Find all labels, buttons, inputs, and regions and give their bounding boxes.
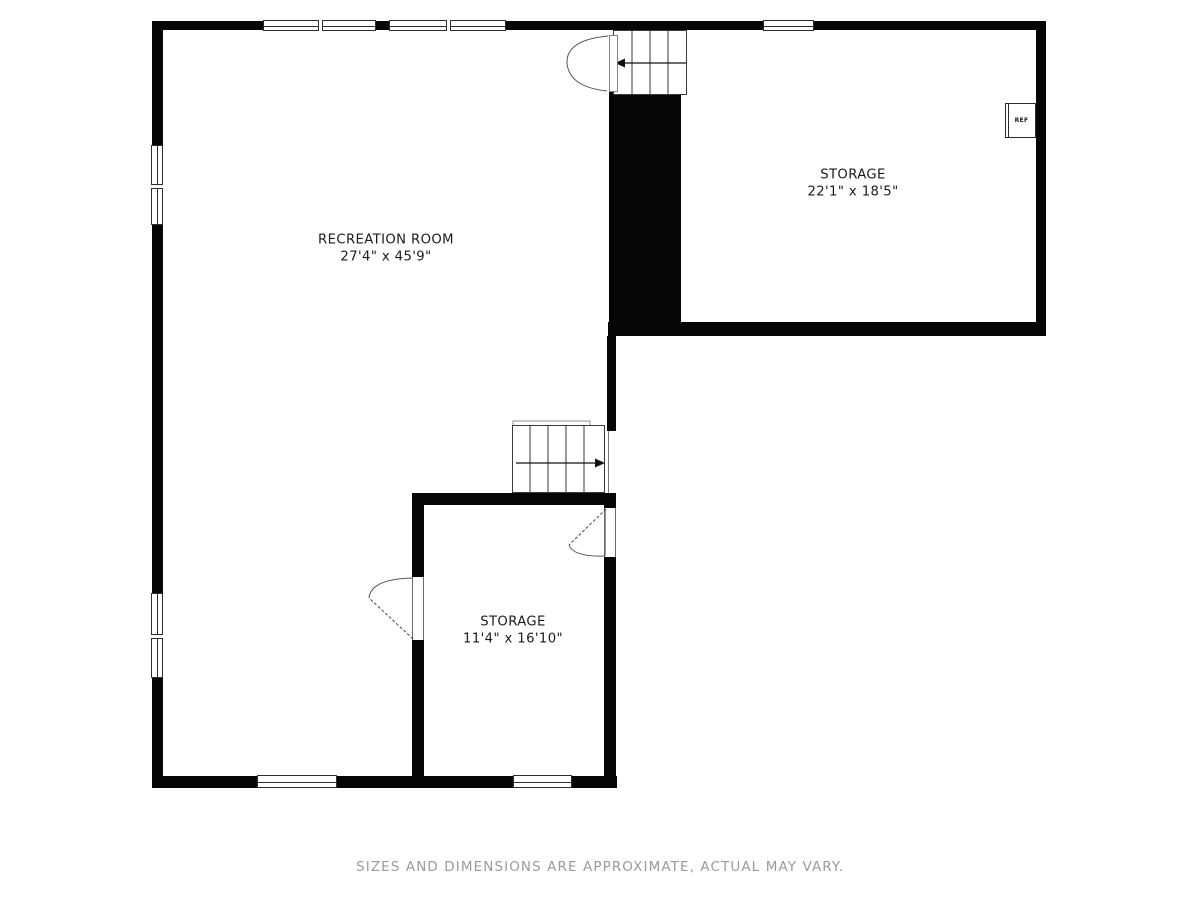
storage-lower-label: STORAGE 11'4" x 16'10"	[463, 615, 563, 648]
upper-stair-door-swing	[567, 36, 618, 92]
floor-plan: RECREATION ROOM 27'4" x 45'9" STORAGE 22…	[0, 0, 1200, 900]
room-name: RECREATION ROOM	[318, 233, 454, 250]
recreation-room-label: RECREATION ROOM 27'4" x 45'9"	[318, 233, 454, 266]
disclaimer-text: SIZES AND DIMENSIONS ARE APPROXIMATE, AC…	[0, 859, 1200, 875]
room-name: STORAGE	[807, 168, 898, 185]
room-dimensions: 11'4" x 16'10"	[463, 631, 563, 648]
room-name: STORAGE	[463, 615, 563, 632]
room-dimensions: 27'4" x 45'9"	[318, 249, 454, 266]
lower-storage-left-door-swing	[369, 578, 413, 639]
refrigerator-symbol: REF	[1005, 103, 1036, 138]
room-dimensions: 22'1" x 18'5"	[807, 184, 898, 201]
storage-upper-label: STORAGE 22'1" x 18'5"	[807, 168, 898, 201]
refrigerator-label: REF	[1013, 117, 1029, 124]
middle-staircase	[513, 421, 609, 493]
lower-storage-right-door-swing	[569, 509, 606, 556]
